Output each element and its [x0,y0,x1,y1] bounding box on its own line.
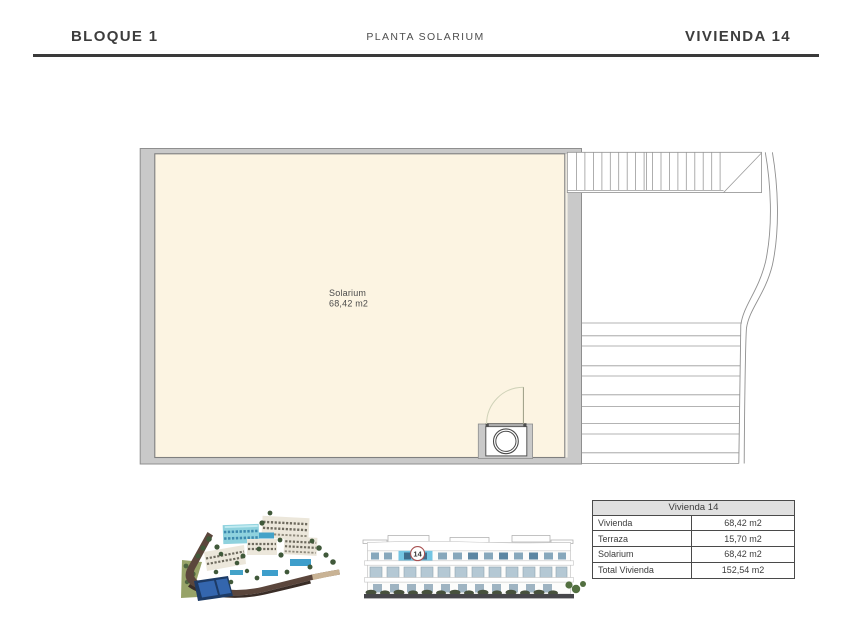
svg-text:14: 14 [413,549,422,558]
svg-text:Solarium: Solarium [329,288,366,298]
svg-text:68,42 m2: 68,42 m2 [329,299,368,309]
